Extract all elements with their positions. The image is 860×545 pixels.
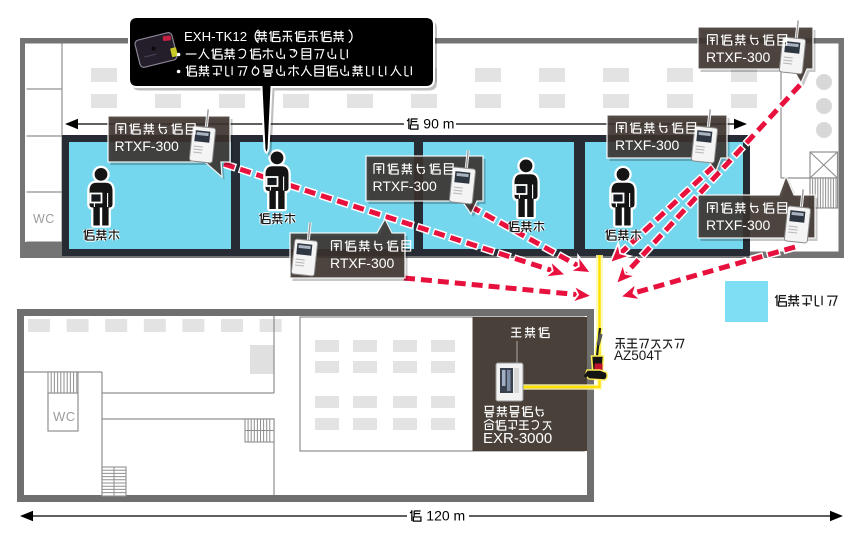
- svg-text:WC: WC: [33, 212, 55, 226]
- svg-text:WC: WC: [53, 409, 76, 424]
- svg-text:RTXF-300: RTXF-300: [330, 255, 395, 271]
- svg-text:EXR-3000: EXR-3000: [483, 430, 552, 447]
- svg-text:RTXF-300: RTXF-300: [706, 49, 771, 65]
- svg-text:90 m: 90 m: [423, 116, 454, 132]
- svg-text:120 m: 120 m: [426, 508, 465, 524]
- svg-text:RTXF-300: RTXF-300: [706, 217, 771, 233]
- svg-text:EXH-TK12: EXH-TK12: [184, 29, 247, 44]
- svg-text:AZ504T: AZ504T: [614, 348, 662, 363]
- svg-text:RTXF-300: RTXF-300: [115, 138, 180, 154]
- svg-text:RTXF-300: RTXF-300: [373, 178, 438, 194]
- svg-text:RTXF-300: RTXF-300: [615, 137, 680, 153]
